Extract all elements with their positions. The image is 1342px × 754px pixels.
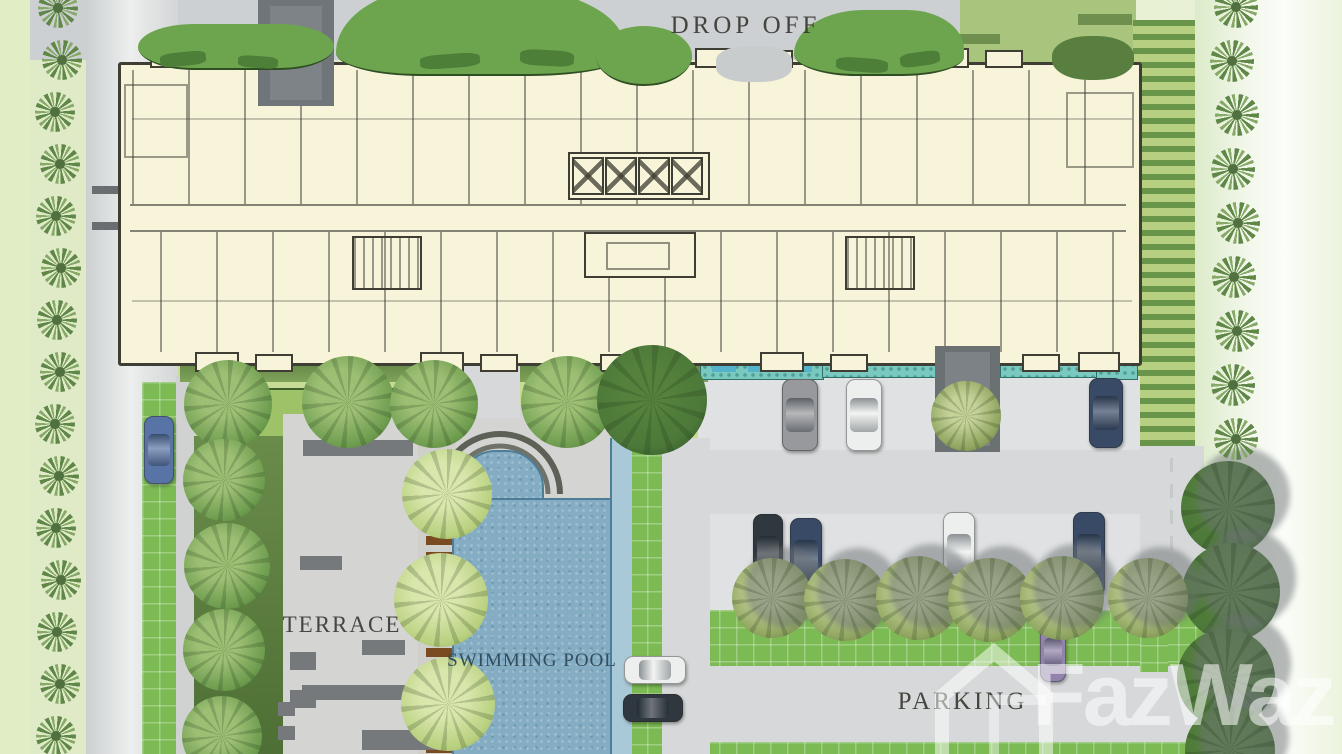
- terrace-bench: [278, 726, 295, 740]
- terrace-bench: [362, 640, 405, 655]
- terrace-bench: [290, 652, 316, 670]
- tree-icon: [597, 345, 707, 455]
- terrace-label: TERRACE: [282, 612, 402, 638]
- car-icon: [1089, 378, 1123, 448]
- elevator-cell: [671, 157, 703, 195]
- palm-tree-icon: [37, 300, 77, 340]
- stair-core-east: [845, 236, 915, 290]
- drop-off-island: [716, 46, 792, 82]
- west-wing-wall: [124, 84, 188, 158]
- interior-line-1: [132, 118, 1132, 120]
- tree-icon: [1020, 556, 1104, 640]
- balcony: [1022, 354, 1060, 372]
- palm-tree-icon: [41, 560, 81, 600]
- palm-tree-icon: [1210, 40, 1254, 82]
- palm-tree-icon: [1212, 256, 1256, 298]
- tree-canopy-2: [336, 0, 624, 76]
- canopy-accent: [520, 49, 575, 68]
- lobby-core: [584, 232, 696, 278]
- left-verge: [0, 0, 30, 754]
- tree-icon: [804, 559, 886, 641]
- balcony: [760, 352, 804, 372]
- east-wing-wall: [1066, 92, 1134, 168]
- palm-tree-icon: [39, 456, 79, 496]
- palm-tree-icon: [36, 196, 76, 236]
- tree-icon: [1108, 558, 1188, 638]
- tree-icon: [184, 523, 270, 609]
- tree-icon: [402, 449, 492, 539]
- tree-icon: [394, 553, 488, 647]
- stair-core-west: [352, 236, 422, 290]
- palm-tree-icon: [40, 664, 80, 704]
- palm-tree-icon: [37, 612, 77, 652]
- balcony: [830, 354, 868, 372]
- hedge-strip: [1133, 20, 1195, 448]
- balcony: [255, 354, 293, 372]
- palm-tree-icon: [35, 404, 75, 444]
- tree-icon: [732, 558, 812, 638]
- palm-tree-icon: [41, 248, 81, 288]
- interior-line-2: [132, 300, 1132, 302]
- elevator-cell: [572, 157, 604, 195]
- watermark-brand: FazWaz: [1032, 644, 1333, 746]
- palm-tree-icon: [1211, 148, 1255, 190]
- tree-icon: [183, 439, 265, 521]
- car-icon: [144, 416, 174, 484]
- palm-tree-icon: [36, 716, 76, 754]
- tree-icon: [184, 360, 272, 448]
- palm-tree-icon: [35, 92, 75, 132]
- palm-tree-icon: [1214, 418, 1258, 460]
- elevator-cell: [638, 157, 670, 195]
- terrace-bench: [302, 685, 405, 700]
- terrace-bench: [300, 556, 342, 570]
- tree-icon: [183, 609, 265, 691]
- balcony: [1078, 352, 1120, 372]
- parking-stalls-upper: [698, 376, 1140, 452]
- palm-tree-icon: [1215, 310, 1259, 352]
- swimming-pool-label: SWIMMING POOL: [447, 650, 617, 672]
- palm-tree-icon: [1216, 202, 1260, 244]
- car-icon: [624, 656, 686, 684]
- tree-icon: [302, 356, 394, 448]
- tree-icon: [931, 381, 1001, 451]
- balcony: [480, 354, 518, 372]
- drop-off-label: DROP OFF: [628, 12, 863, 40]
- car-icon: [782, 379, 818, 451]
- corridor-wall-north: [130, 204, 1126, 206]
- car-icon: [846, 379, 882, 451]
- tree-canopy-5: [1052, 36, 1134, 80]
- elevator-bank: [568, 152, 710, 200]
- palm-tree-icon: [40, 144, 80, 184]
- hedge-row: [1078, 14, 1132, 25]
- lobby-inner: [606, 242, 670, 270]
- elevator-cell: [605, 157, 637, 195]
- terrace-bench: [290, 690, 316, 708]
- palm-tree-icon: [40, 352, 80, 392]
- tree-icon: [390, 360, 478, 448]
- palm-tree-icon: [1211, 364, 1255, 406]
- site-plan: DROP OFF TERRACE SWIMMING POOL PARKING F…: [0, 0, 1342, 754]
- car-icon: [623, 694, 683, 722]
- palm-tree-icon: [36, 508, 76, 548]
- palm-tree-icon: [1215, 94, 1259, 136]
- palm-tree-icon: [42, 40, 82, 80]
- parking-aisle: [698, 450, 1140, 516]
- balcony: [985, 50, 1023, 68]
